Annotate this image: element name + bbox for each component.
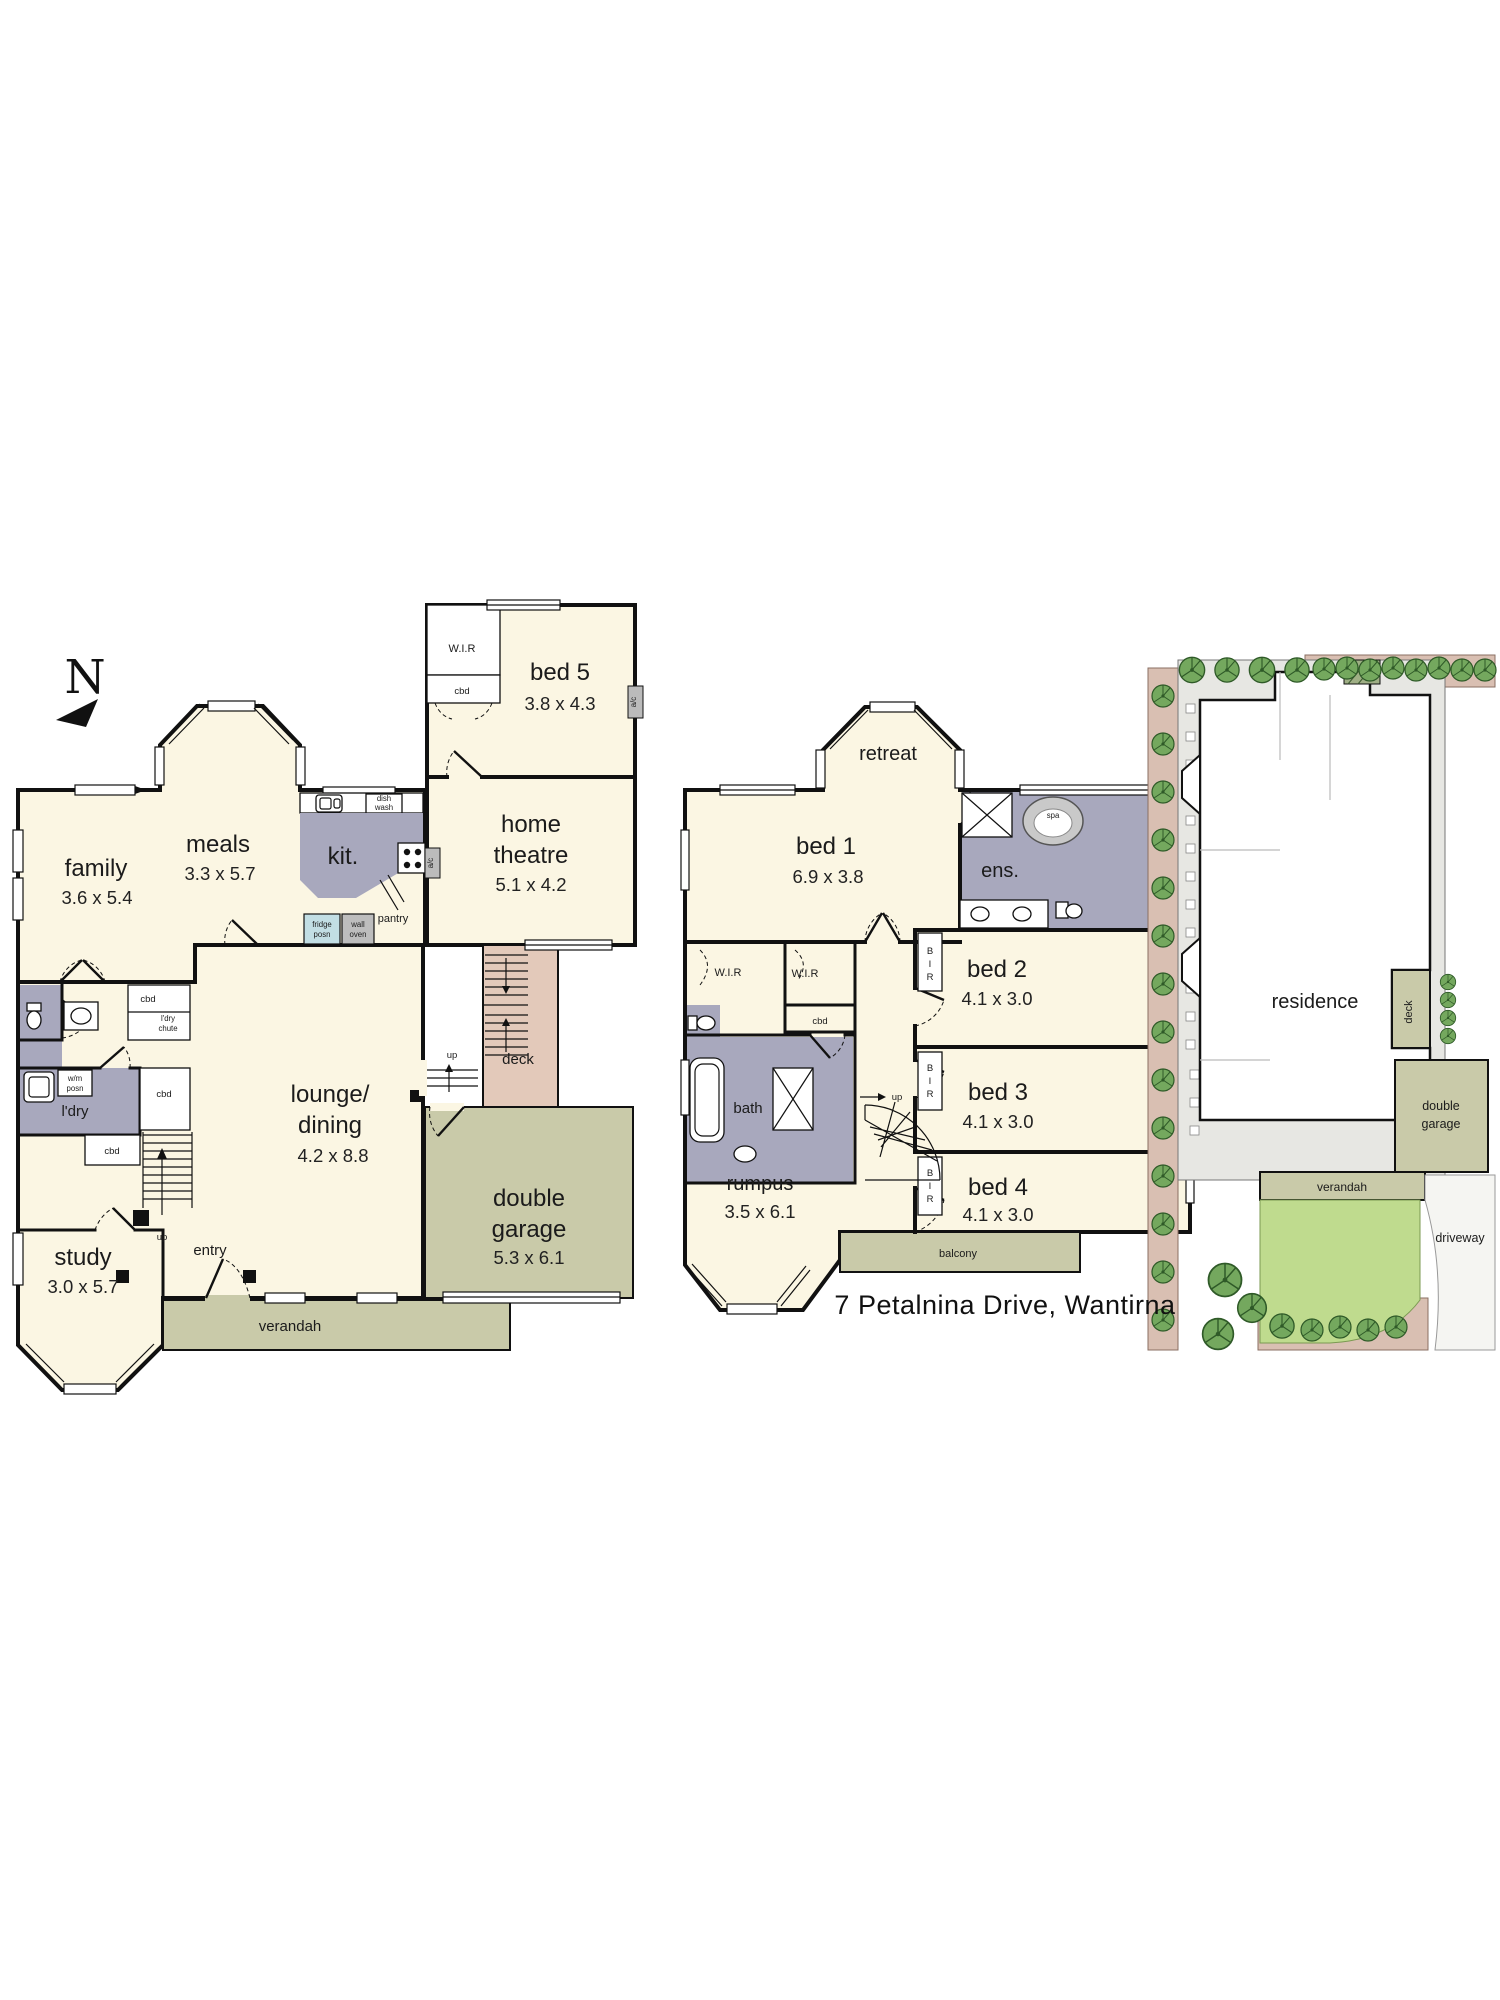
deck-area (483, 945, 558, 1107)
room-label-home-theatre-1: home (501, 811, 561, 838)
site-label-verandah: verandah (1317, 1180, 1367, 1194)
room-dims-bed3: 4.1 x 3.0 (963, 1111, 1034, 1132)
label-wm-2: posn (67, 1084, 84, 1093)
hall-wet-floor (20, 1040, 62, 1068)
room-label-deck: deck (502, 1051, 534, 1068)
svg-text:R: R (927, 1089, 934, 1100)
label-fridge-1: fridge (312, 920, 332, 929)
room-dims-garage: 5.3 x 6.1 (494, 1247, 565, 1268)
room-label-bed2: bed 2 (967, 956, 1027, 983)
room-label-garage-1: double (493, 1185, 565, 1212)
label-chute-1: l'dry (161, 1014, 175, 1023)
room-label-entry: entry (193, 1242, 227, 1259)
svg-text:R: R (927, 972, 934, 983)
room-label-home-theatre-2: theatre (494, 842, 569, 869)
powder-room-floor (20, 985, 62, 1040)
room-label-retreat: retreat (859, 743, 917, 765)
room-dims-lounge: 4.2 x 8.8 (298, 1145, 369, 1166)
ground-floor-plan: N (0, 440, 660, 1420)
garden-bed (1148, 668, 1178, 1350)
label-fridge-2: posn (314, 930, 331, 939)
room-label-meals: meals (186, 831, 250, 858)
label-pantry: pantry (378, 913, 409, 925)
svg-text:I: I (929, 1181, 932, 1192)
room-dims-bed5: 3.8 x 4.3 (525, 693, 596, 714)
room-label-verandah: verandah (259, 1318, 322, 1335)
room-label-laundry: l'dry (61, 1103, 89, 1120)
label-dishwash-1: dish (377, 794, 391, 803)
site-label-garage-2: garage (1422, 1117, 1461, 1131)
north-label: N (64, 650, 105, 705)
property-address: 7 Petalnina Drive, Wantirna (790, 1290, 1220, 1321)
svg-text:B: B (927, 1063, 933, 1074)
room-dims-rumpus: 3.5 x 6.1 (725, 1201, 796, 1222)
room-label-balcony: balcony (939, 1248, 977, 1260)
residence-footprint (1182, 660, 1430, 1120)
basin-icon (971, 907, 989, 921)
label-dishwash-2: wash (374, 803, 393, 812)
room-label-bed3: bed 3 (968, 1079, 1028, 1106)
room-dims-bed1: 6.9 x 3.8 (793, 866, 864, 887)
oven-icon (342, 914, 374, 944)
site-label-residence: residence (1272, 991, 1359, 1013)
room-label-lounge-1: lounge/ (291, 1081, 370, 1108)
label-wir: W.I.R (792, 968, 819, 980)
cooktop-icon (398, 843, 425, 873)
site-label-deck: deck (1403, 1000, 1415, 1024)
room-label-ensuite: ens. (981, 860, 1019, 882)
room-label-bed4: bed 4 (968, 1174, 1028, 1201)
basin-icon (734, 1146, 756, 1162)
room-label-lounge-2: dining (298, 1112, 362, 1139)
room-dims-study: 3.0 x 5.7 (48, 1276, 119, 1297)
svg-text:R: R (927, 1194, 934, 1205)
driveway-area (1425, 1175, 1495, 1350)
basin-icon (1013, 907, 1031, 921)
label-spa: spa (1047, 811, 1060, 820)
room-label-rumpus: rumpus (727, 1173, 794, 1195)
label-wir: W.I.R (449, 643, 476, 655)
toilet-icon (688, 1016, 697, 1030)
label-wir: W.I.R (715, 967, 742, 979)
svg-text:B: B (927, 946, 933, 957)
label-oven-1: wall (350, 920, 365, 929)
fridge-icon (304, 914, 340, 944)
room-label-bed5: bed 5 (530, 659, 590, 686)
verandah-area (163, 1300, 510, 1350)
label-cbd: cbd (812, 1016, 827, 1027)
label-wm-1: w/m (67, 1074, 82, 1083)
site-label-driveway: driveway (1435, 1231, 1485, 1245)
label-cbd: cbd (156, 1089, 171, 1100)
toilet-icon (27, 1003, 41, 1011)
room-dims-bed2: 4.1 x 3.0 (962, 988, 1033, 1009)
svg-text:I: I (929, 1076, 932, 1087)
north-compass: N (56, 650, 106, 727)
svg-text:I: I (929, 959, 932, 970)
svg-text:B: B (927, 1168, 933, 1179)
label-up: up (157, 1232, 168, 1243)
label-cbd: cbd (140, 994, 155, 1005)
site-label-garage-1: double (1422, 1099, 1460, 1113)
room-label-bath: bath (733, 1100, 762, 1117)
label-cbd: cbd (104, 1146, 119, 1157)
room-dims-bed4: 4.1 x 3.0 (963, 1204, 1034, 1225)
room-label-kitchen: kit. (328, 843, 359, 870)
room-dims-meals: 3.3 x 5.7 (185, 863, 256, 884)
room-label-bed1: bed 1 (796, 833, 856, 860)
room-label-family: family (65, 855, 128, 882)
label-chute-2: chute (158, 1024, 177, 1033)
room-dims-home-theatre: 5.1 x 4.2 (496, 874, 567, 895)
label-ac: a/c (629, 697, 638, 708)
floorplan-page: N (0, 0, 1500, 2000)
site-plan: residence deck double garage verandah dr… (1130, 640, 1500, 1360)
label-cbd: cbd (454, 686, 469, 697)
label-up: up (447, 1050, 458, 1061)
room-label-garage-2: garage (492, 1216, 567, 1243)
label-up: up (892, 1092, 903, 1103)
label-oven-2: oven (350, 930, 367, 939)
site-garage (1395, 1060, 1488, 1172)
label-ac: a/c (426, 858, 435, 869)
room-dims-family: 3.6 x 5.4 (62, 887, 133, 908)
room-label-study: study (54, 1244, 111, 1271)
